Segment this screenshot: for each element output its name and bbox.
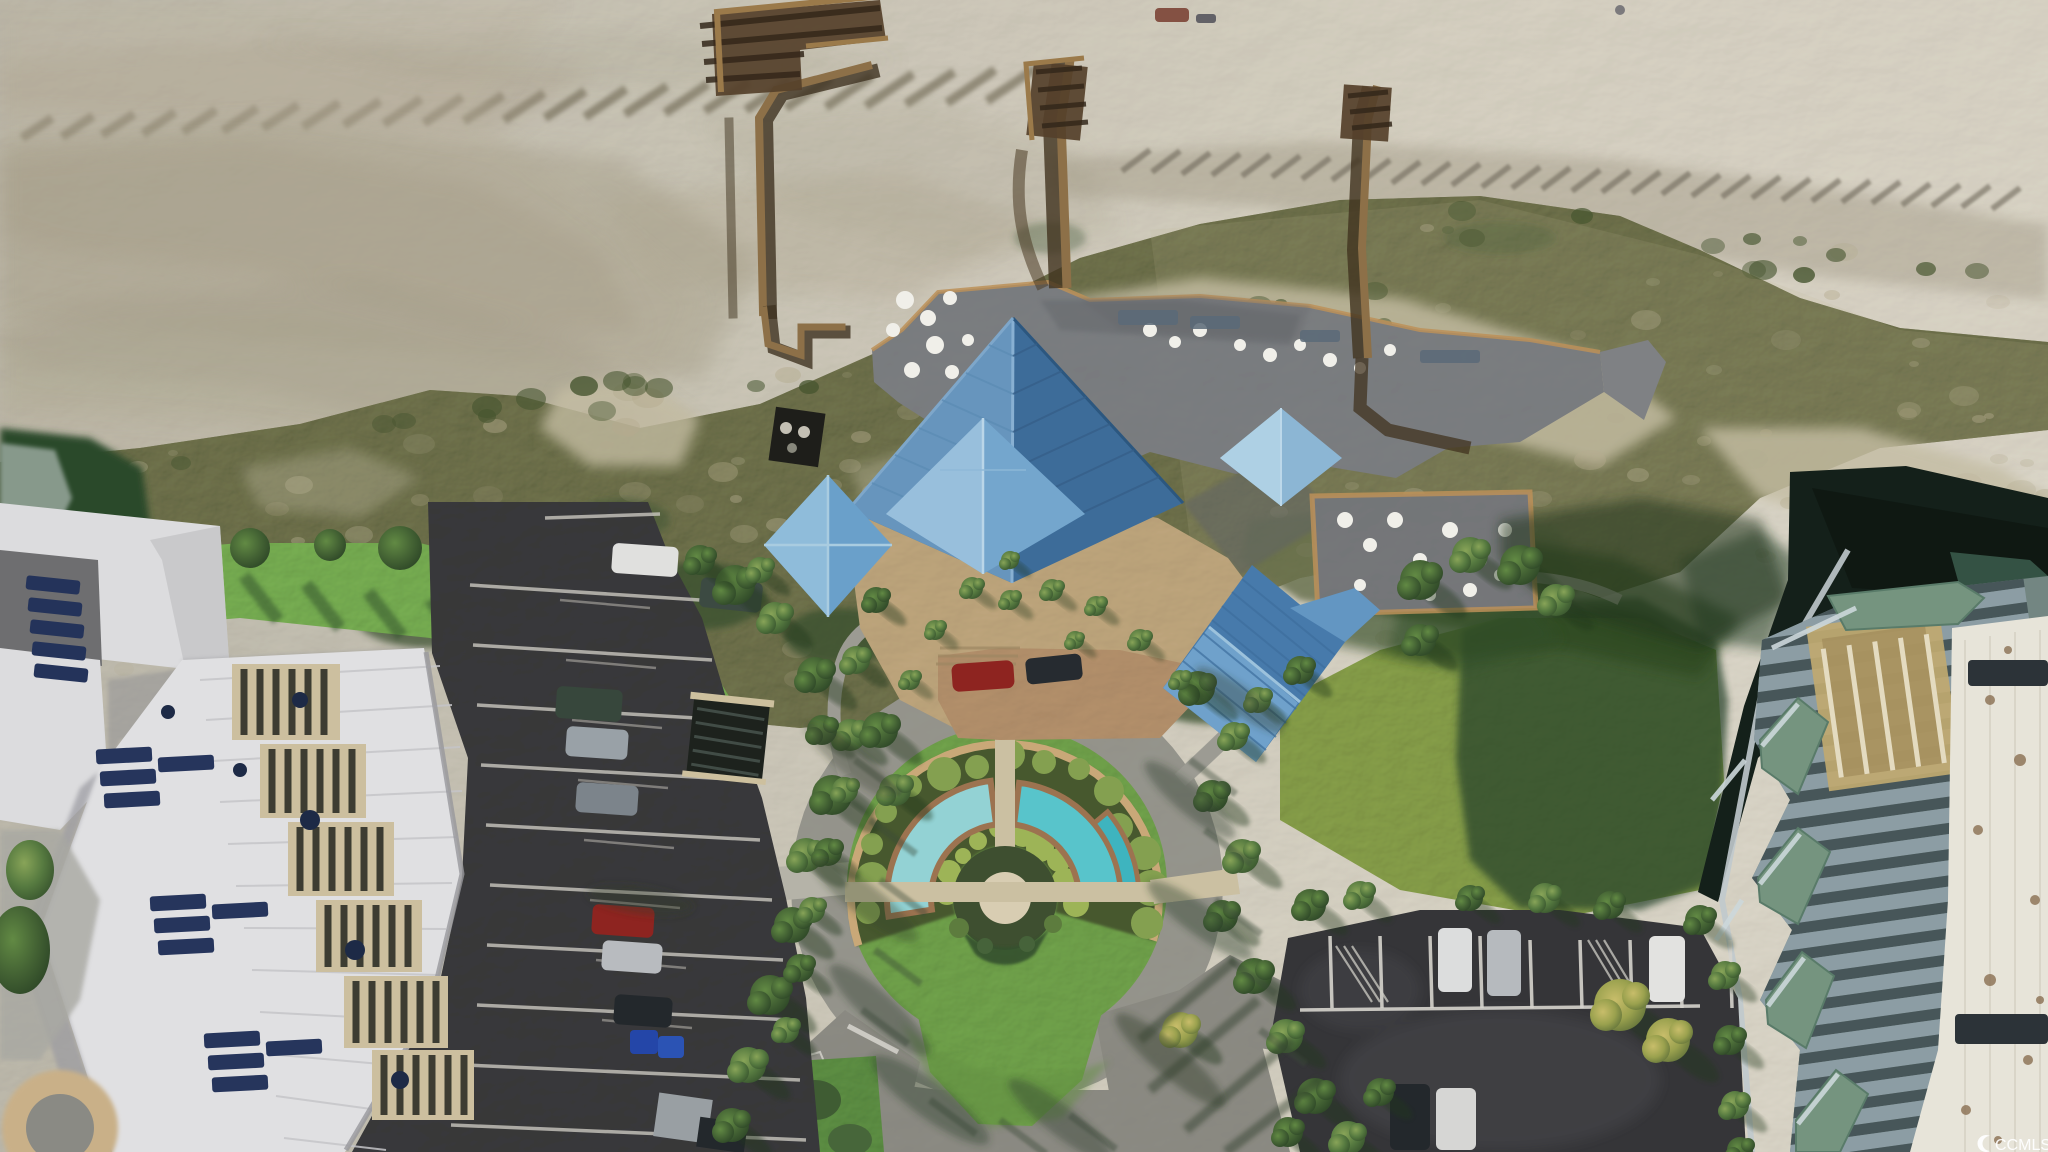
svg-text:CCMLS: CCMLS [1995,1137,2048,1152]
